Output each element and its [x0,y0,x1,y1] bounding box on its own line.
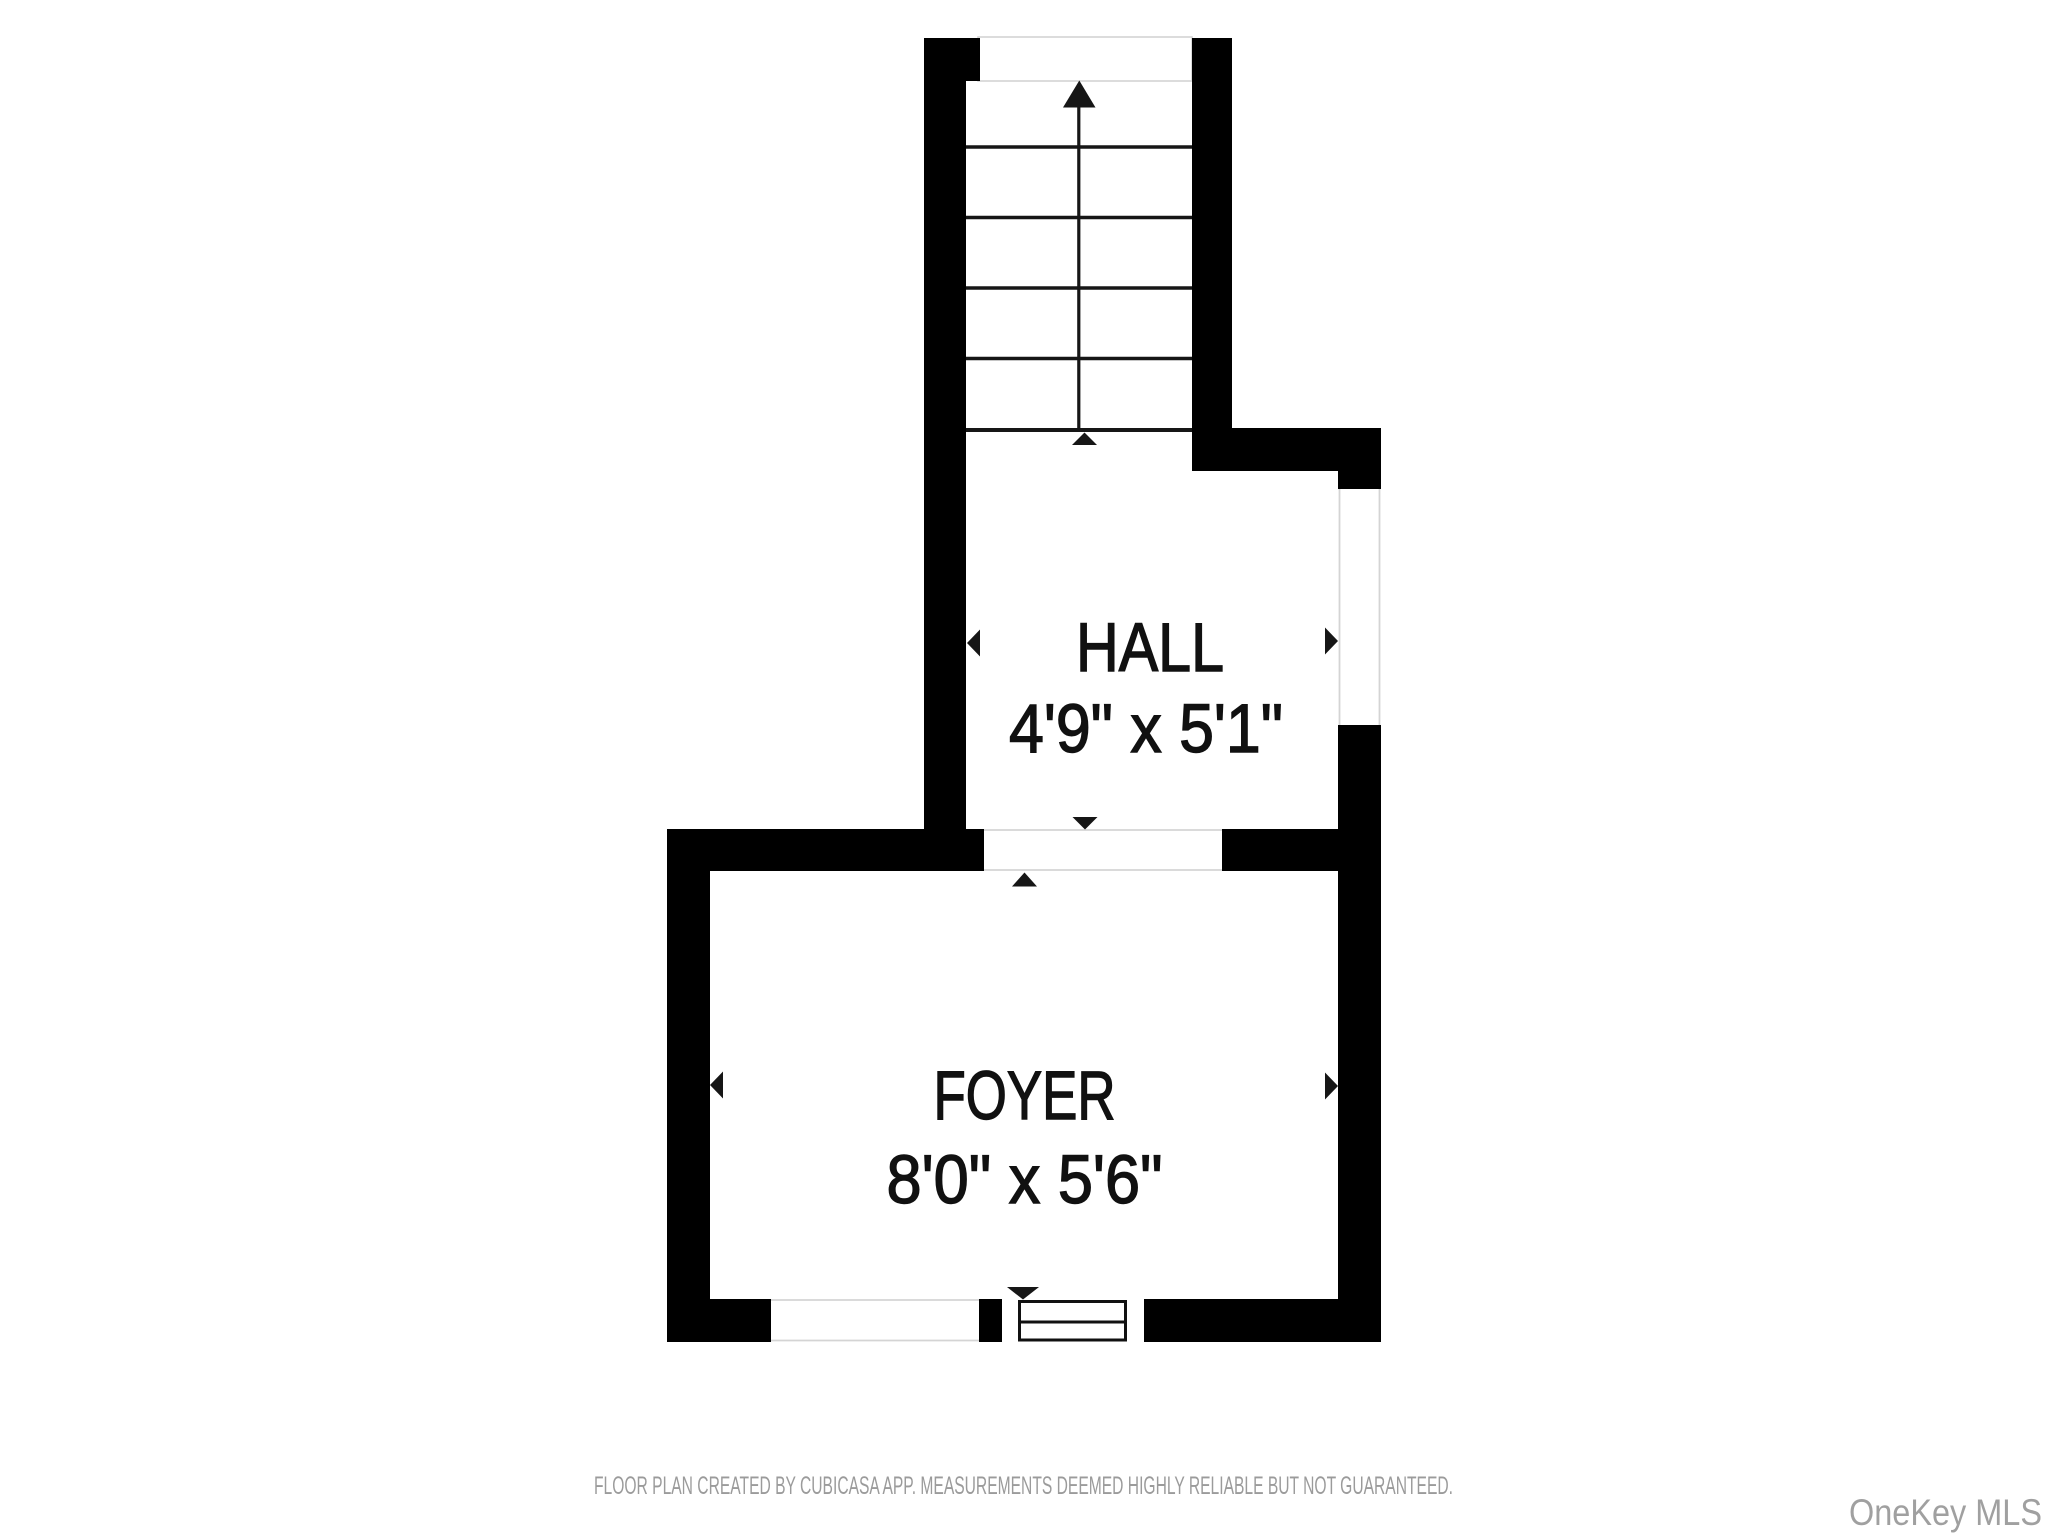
svg-text:FLOOR PLAN CREATED BY CUBICASA: FLOOR PLAN CREATED BY CUBICASA APP. MEAS… [594,1472,1453,1500]
svg-text:FOYER: FOYER [934,1057,1116,1134]
svg-text:OneKey MLS: OneKey MLS [1849,1491,2042,1533]
svg-text:8'0" x 5'6": 8'0" x 5'6" [887,1141,1163,1218]
svg-text:HALL: HALL [1076,609,1224,686]
svg-text:4'9" x 5'1": 4'9" x 5'1" [1009,690,1283,767]
